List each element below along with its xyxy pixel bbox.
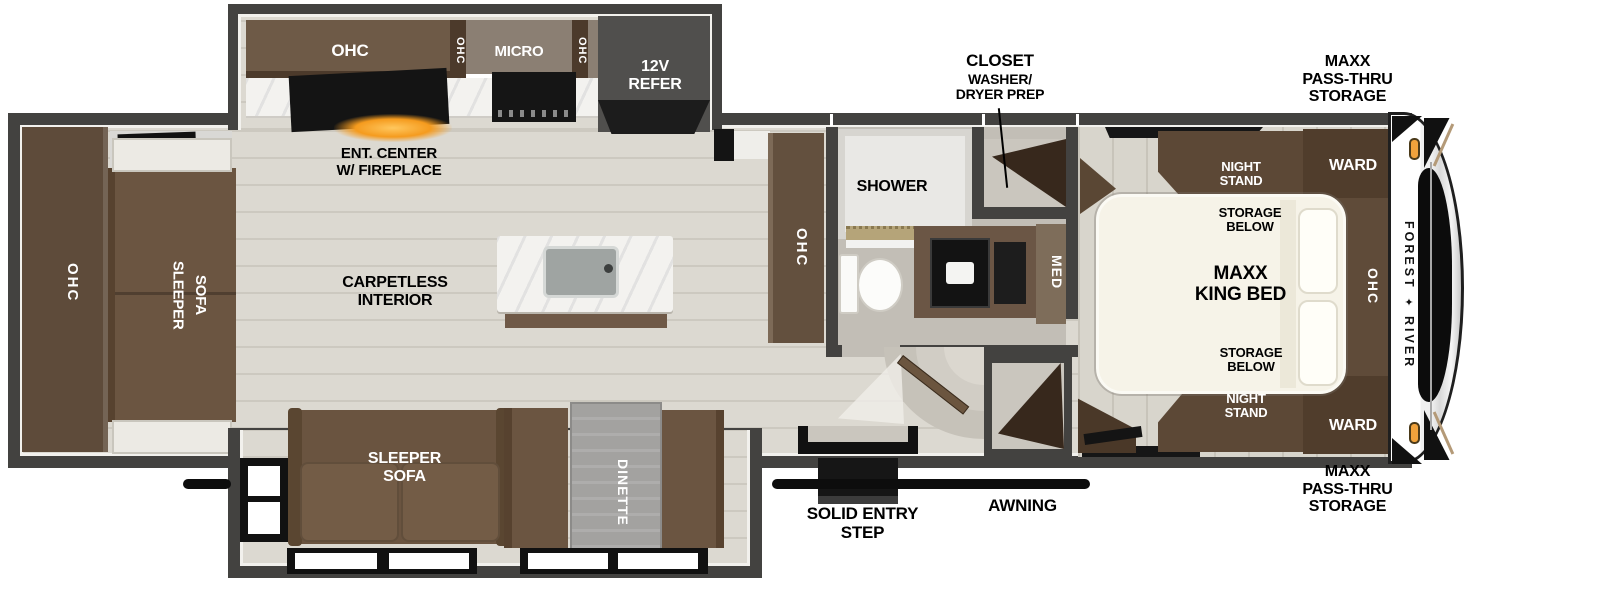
- night-stand-top-label: NIGHT STAND: [1198, 160, 1284, 189]
- closet-title-label: CLOSET: [940, 52, 1060, 71]
- rear-sofa-cushion-top: [112, 138, 232, 172]
- slide-bottom-window-right: [520, 548, 708, 574]
- fireplace-glow: [334, 114, 452, 142]
- window-pane: [295, 553, 377, 569]
- ent-center-label: ENT. CENTER W/ FIREPLACE: [319, 146, 459, 179]
- dinette-bench-left: [504, 408, 568, 548]
- wall-joint: [830, 114, 833, 126]
- awning-bar-rear-segment: [183, 479, 231, 489]
- cap-seam-line: [1430, 162, 1432, 430]
- closet-subtitle-label: WASHER/ DRYER PREP: [935, 72, 1065, 103]
- brand-logo: FOREST ✦ RIVER: [1396, 176, 1422, 414]
- vanity-panel-2: [994, 242, 1026, 304]
- wall-bedroom-divider: [1066, 127, 1078, 319]
- pillow-bottom: [1298, 300, 1338, 386]
- closet-wall-bottom: [972, 207, 1078, 219]
- pass-thru-top-label: MAXX PASS-THRU STORAGE: [1270, 53, 1425, 106]
- marker-light-top: [1409, 138, 1420, 160]
- entry-floor-recess: [798, 426, 918, 454]
- rear-sofa-cushion-bottom: [112, 420, 232, 454]
- floorplan-scene: FOREST ✦ RIVER OHC OHC MICRO OHC 12V REF…: [0, 0, 1600, 592]
- kitchen-ohc-label: OHC: [260, 42, 440, 61]
- rear-ohc-label: OHC: [52, 245, 80, 321]
- window-pane: [389, 553, 469, 569]
- refrigerator-base: [598, 100, 710, 134]
- pass-thru-bottom-label: MAXX PASS-THRU STORAGE: [1270, 463, 1425, 516]
- forest-river-crest-icon: ✦: [1404, 296, 1413, 309]
- cooktop: [492, 72, 576, 122]
- slide-sofa-label: SLEEPER SOFA: [352, 450, 457, 485]
- brand-word-top: FOREST: [1402, 221, 1416, 290]
- night-stand-bottom-label: NIGHT STAND: [1203, 392, 1289, 421]
- micro-label: MICRO: [466, 44, 572, 61]
- refer-label: 12V REFER: [600, 58, 710, 93]
- toilet-bowl: [857, 258, 903, 312]
- window-pane: [248, 466, 280, 496]
- awning-label: AWNING: [975, 497, 1070, 516]
- rear-sofa-label: SLEEPER SOFA: [166, 243, 218, 347]
- wall-shower-closet: [972, 127, 984, 219]
- brand-word-bottom: RIVER: [1402, 316, 1416, 369]
- marker-light-bottom: [1409, 422, 1420, 444]
- wall-joint: [1076, 114, 1079, 126]
- storage-below-bottom-label: STORAGE BELOW: [1207, 346, 1295, 375]
- med-label: MED: [1038, 241, 1064, 303]
- slide-side-window: [240, 458, 288, 542]
- king-bed-label: MAXX KING BED: [1163, 264, 1318, 306]
- awning-bar: [772, 479, 1090, 489]
- entry-recess-inner: [808, 426, 908, 442]
- pantry-ohc-label: OHC: [781, 216, 809, 280]
- vanity-sink: [946, 262, 974, 284]
- kitchen-ohc-divider-left-label: OHC: [451, 28, 466, 74]
- window-pane: [618, 553, 698, 569]
- dinette-bench-right: [662, 410, 724, 548]
- kitchen-ohc-divider-right-label: OHC: [573, 28, 588, 74]
- wall-kitchen-bath: [826, 127, 838, 357]
- window-pane: [248, 502, 280, 534]
- counter-corner-dark: [714, 129, 734, 161]
- storage-below-top-label: STORAGE BELOW: [1206, 206, 1294, 235]
- wall-joint: [982, 114, 985, 126]
- slide-bottom-window-left: [287, 548, 477, 574]
- bedroom-ohc-label: OHC: [1354, 256, 1380, 318]
- bath-wall-bottom-left: [826, 345, 842, 357]
- sink-faucet: [604, 264, 613, 273]
- toilet-tank: [839, 254, 859, 314]
- ward-bottom-label: WARD: [1318, 417, 1388, 435]
- dinette-label: DINETTE: [602, 446, 630, 538]
- entry-step-label: SOLID ENTRY STEP: [790, 505, 935, 542]
- carpetless-label: CARPETLESS INTERIOR: [330, 274, 460, 309]
- counter-corner: [734, 131, 770, 159]
- ward-top-label: WARD: [1318, 157, 1388, 175]
- shower-label: SHOWER: [832, 178, 952, 196]
- window-pane: [528, 553, 608, 569]
- cooktop-burners: [498, 110, 570, 117]
